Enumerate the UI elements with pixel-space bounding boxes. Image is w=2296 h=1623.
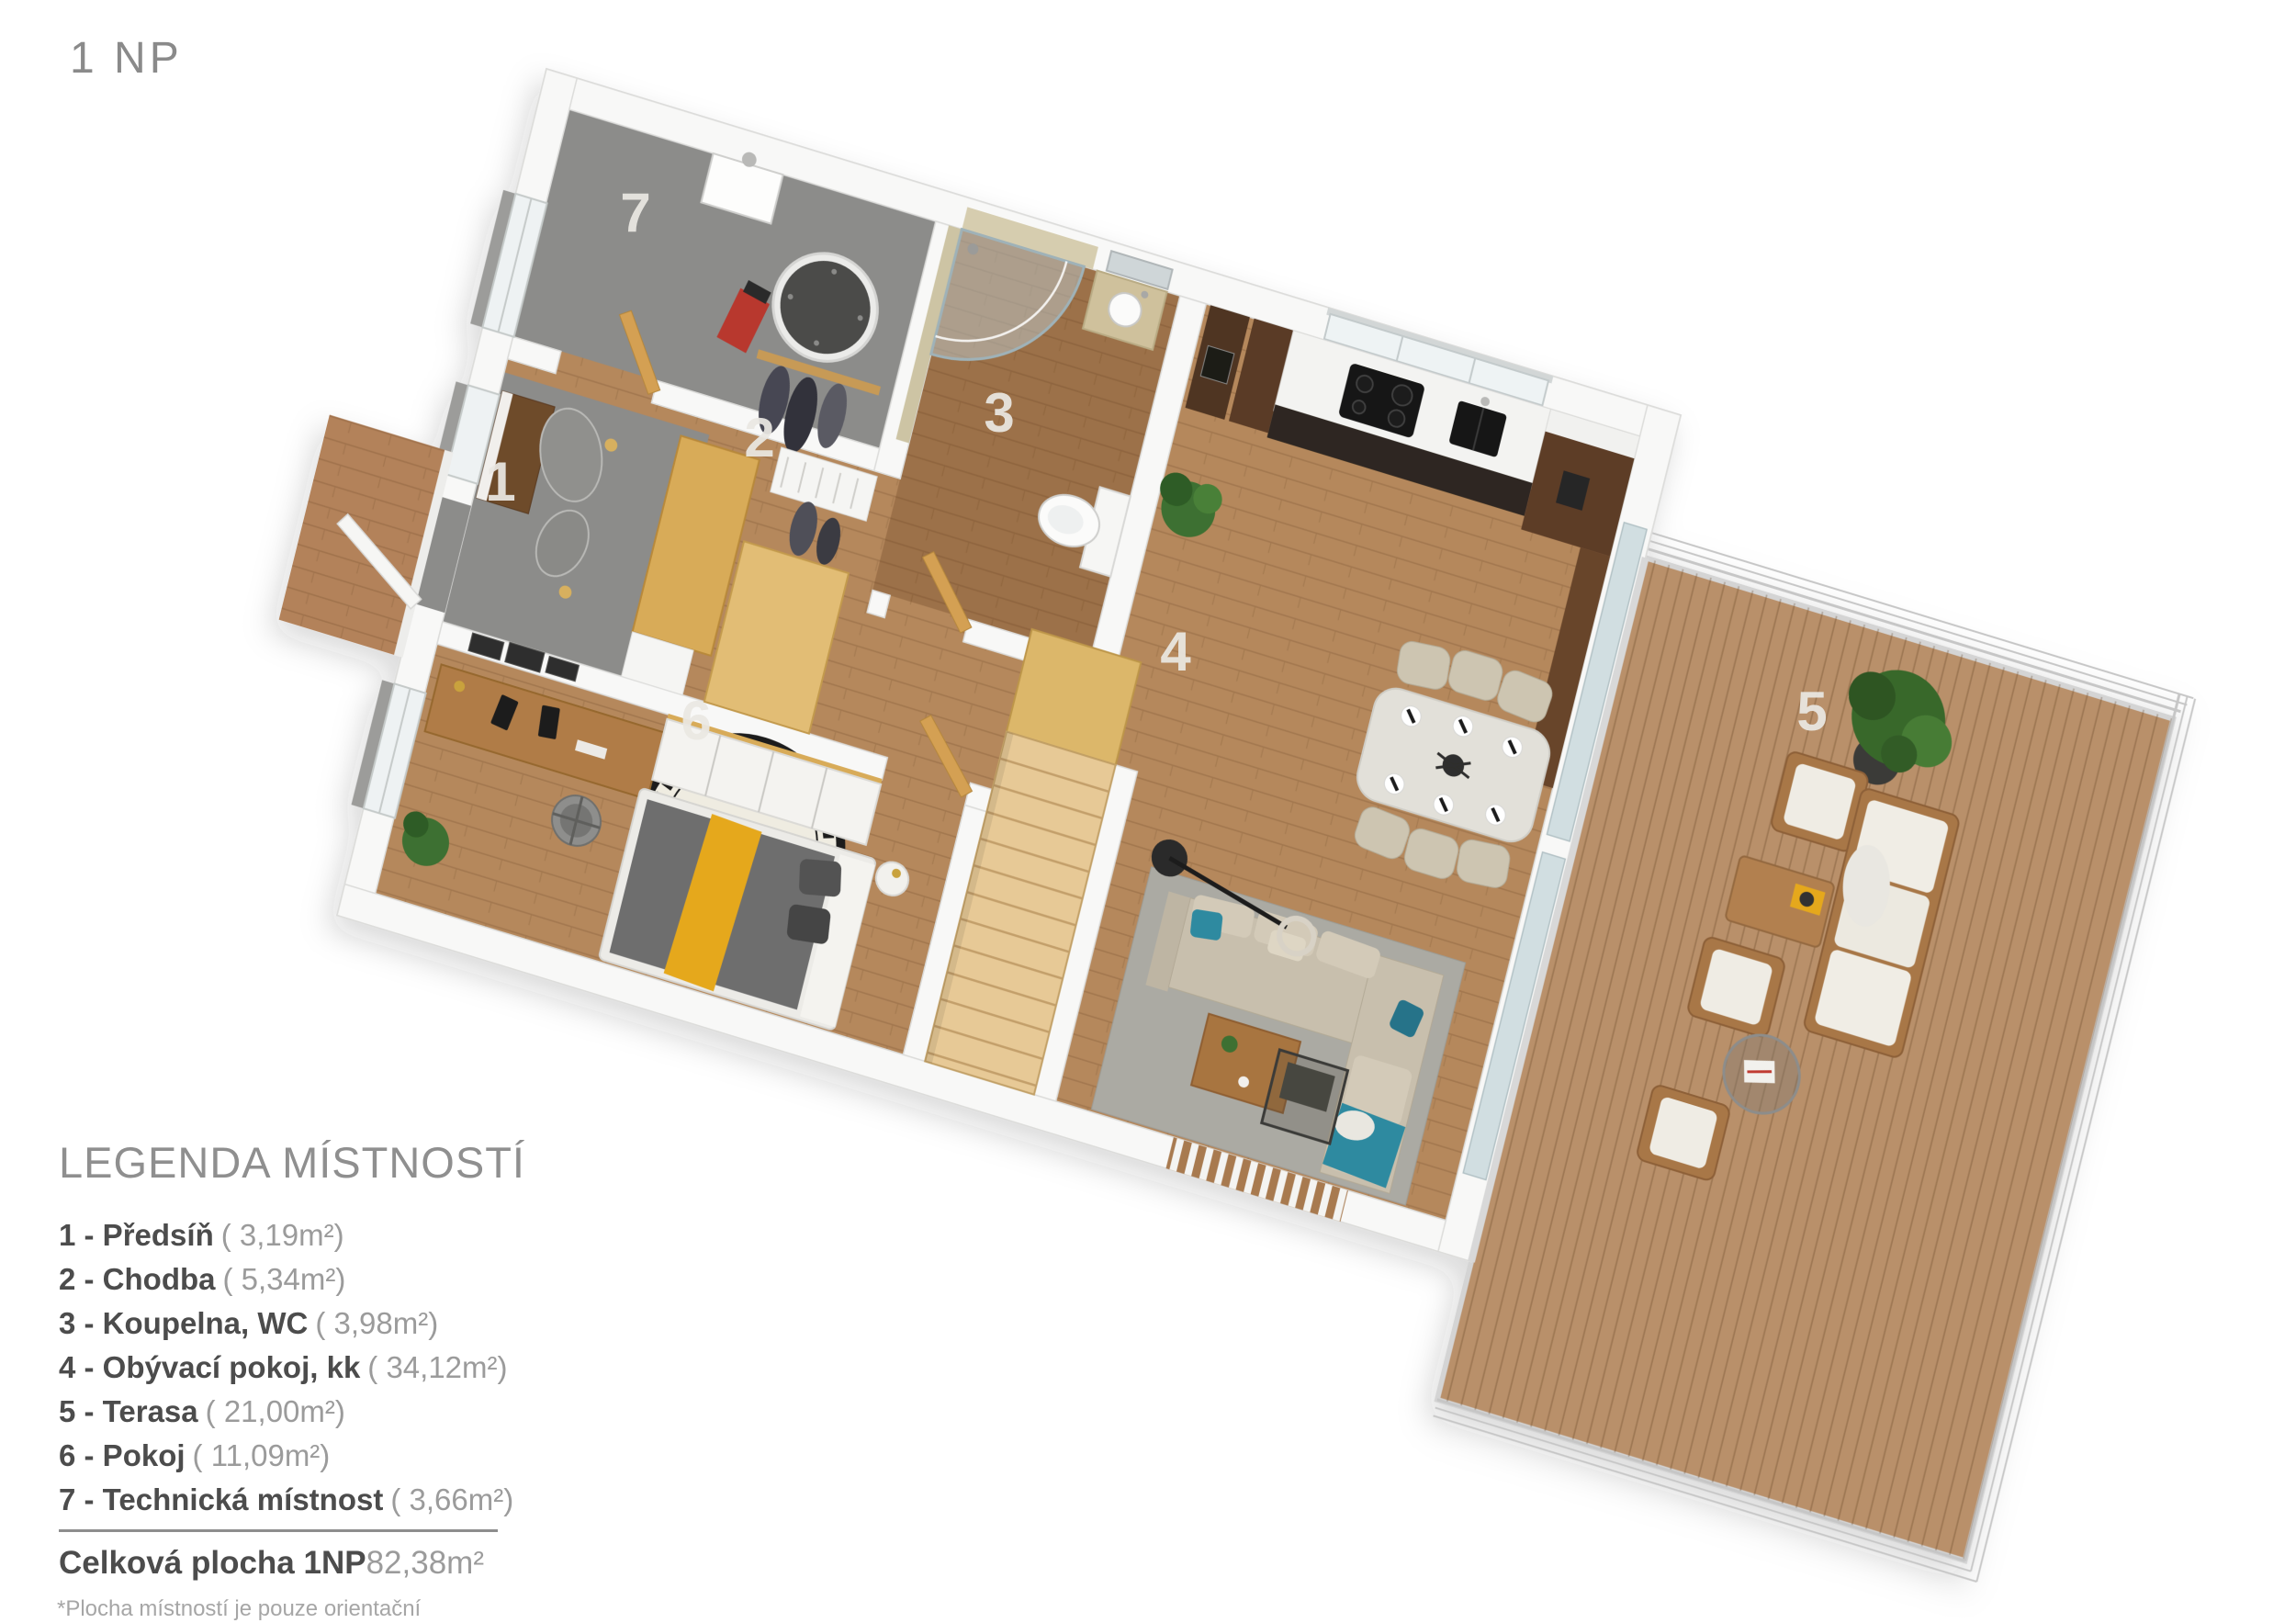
room-name: 4 - Obývací pokoj, kk [59, 1350, 360, 1384]
legend-row: 6 - Pokoj( 11,09m²) [59, 1434, 702, 1478]
room-name: 6 - Pokoj [59, 1438, 186, 1472]
room-area: ( 11,09m²) [193, 1438, 331, 1472]
legend-row: 4 - Obývací pokoj, kk( 34,12m²) [59, 1346, 702, 1390]
legend-title: LEGENDA MÍSTNOSTÍ [59, 1137, 702, 1188]
room-label-4: 4 [1160, 621, 1191, 682]
room-name: 7 - Technická místnost [59, 1482, 383, 1516]
room-name: 5 - Terasa [59, 1394, 198, 1428]
room-label-1: 1 [485, 451, 515, 513]
room-label-5: 5 [1796, 681, 1827, 742]
room-area: ( 5,34m²) [223, 1262, 346, 1296]
apartment [215, 31, 1684, 1262]
room-name: 1 - Předsíň [59, 1218, 214, 1252]
legend-total: Celková plocha 1NP 82,38m² [59, 1545, 702, 1582]
room-area: ( 3,98m²) [315, 1306, 438, 1340]
legend-row: 5 - Terasa( 21,00m²) [59, 1390, 702, 1434]
total-value: 82,38m² [366, 1545, 484, 1582]
room-name: 3 - Koupelna, WC [59, 1306, 308, 1340]
room-area: ( 3,19m²) [221, 1218, 344, 1252]
legend-divider [59, 1529, 498, 1532]
legend-row: 7 - Technická místnost( 3,66m²) [59, 1478, 702, 1522]
bed-pillow [786, 904, 831, 945]
total-label: Celková plocha 1NP [59, 1545, 366, 1582]
legend-row: 1 - Předsíň( 3,19m²) [59, 1213, 702, 1257]
room-label-6: 6 [681, 690, 711, 751]
room-area: ( 34,12m²) [367, 1350, 507, 1384]
room-label-3: 3 [984, 382, 1014, 444]
legend-footnote: *Plocha místností je pouze orientační [57, 1596, 702, 1622]
page: 1 NP [0, 0, 2296, 1623]
room-label-2: 2 [744, 407, 774, 468]
room-area: ( 3,66m²) [390, 1482, 513, 1516]
legend-row: 2 - Chodba( 5,34m²) [59, 1257, 702, 1302]
legend: LEGENDA MÍSTNOSTÍ 1 - Předsíň( 3,19m²) 2… [59, 1137, 702, 1622]
teal-pillow [1189, 908, 1222, 941]
room-name: 2 - Chodba [59, 1262, 216, 1296]
room-area: ( 21,00m²) [206, 1394, 345, 1428]
room-label-7: 7 [620, 182, 650, 243]
bed-pillow [799, 859, 841, 897]
legend-row: 3 - Koupelna, WC( 3,98m²) [59, 1302, 702, 1346]
legend-rows: 1 - Předsíň( 3,19m²) 2 - Chodba( 5,34m²)… [59, 1213, 702, 1522]
